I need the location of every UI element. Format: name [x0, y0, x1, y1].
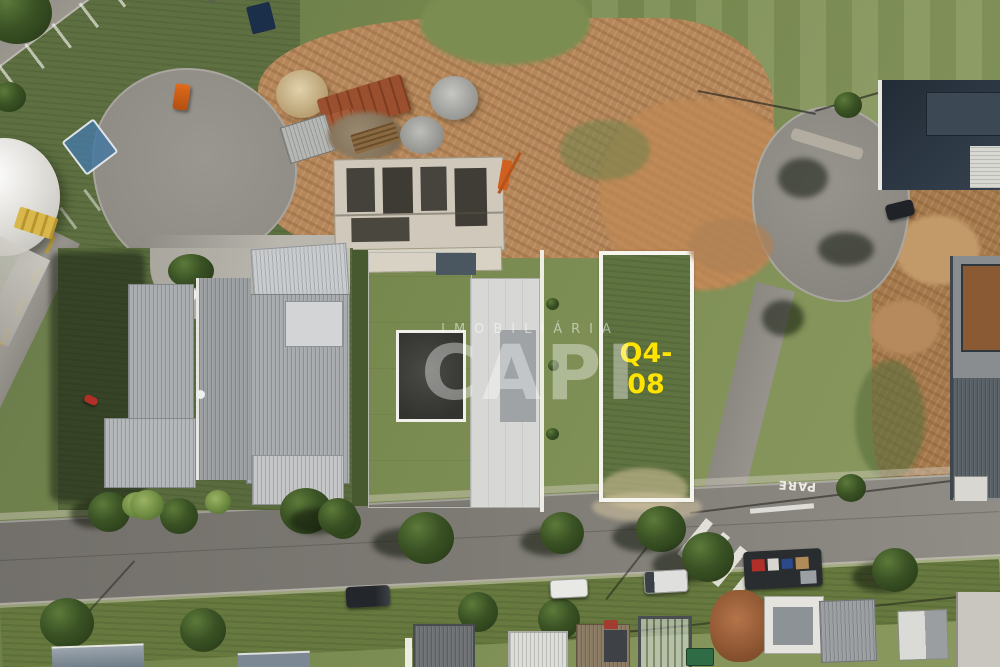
watermark-capi: CAPI	[378, 337, 683, 409]
roof-left	[128, 284, 194, 420]
below-tree-2	[180, 608, 226, 652]
dark-pickup	[345, 585, 390, 608]
foundation-room	[454, 168, 487, 227]
below-tree-1	[40, 598, 94, 648]
street-tree-6	[836, 474, 866, 502]
tree-near-fence	[834, 92, 862, 118]
truck-cab	[800, 570, 817, 584]
street-tree-4	[636, 506, 686, 552]
hedge-bush-1	[546, 298, 559, 310]
roof-dark-section	[436, 253, 476, 275]
street-tree-1	[318, 498, 358, 536]
dirt-pile-bottom-right	[710, 590, 770, 662]
hedge-strip	[352, 250, 368, 506]
white-structure-br	[764, 596, 824, 654]
bottom-dark-panel	[604, 630, 627, 662]
satellite-dish	[196, 390, 205, 399]
palm-bottom-left	[130, 490, 164, 520]
tree-shadow-on-culdesac	[778, 158, 828, 198]
bottom-house-right-1	[819, 599, 877, 663]
bottom-garage-white	[508, 631, 568, 667]
cargo-tan	[795, 557, 809, 570]
cargo-red	[751, 559, 765, 572]
street-tree-7	[872, 548, 918, 592]
driveway-right-edge	[956, 592, 1000, 667]
foundation-room	[351, 217, 409, 242]
aerial-photo-canvas: PARE	[0, 0, 1000, 667]
dirt-eroded-streaks2	[870, 300, 940, 355]
bottom-house-right-2	[897, 609, 949, 661]
bottom-house-2	[238, 651, 311, 667]
pergola-glass	[638, 616, 692, 667]
foundation-slab	[333, 157, 505, 254]
flatbed-truck	[743, 548, 823, 590]
gravel-pile-1	[430, 76, 478, 120]
white-car	[550, 578, 589, 599]
foundation-room	[420, 167, 447, 211]
gravel-pile-2	[400, 116, 444, 154]
construction-building-right	[950, 256, 1000, 500]
grass-scrub-right	[855, 360, 925, 480]
dark-house-deck	[970, 146, 1000, 188]
white-shed-right	[954, 476, 988, 502]
tree-row-2	[160, 498, 198, 534]
bottom-house-1	[52, 643, 145, 667]
construction-open-interior	[961, 264, 1000, 352]
white-suv	[643, 569, 688, 594]
bottom-white-frame	[405, 638, 412, 667]
watermark: IMOBILIÁRIA CAPI	[378, 322, 683, 409]
foundation-room	[346, 168, 375, 212]
cargo-blue	[781, 558, 793, 569]
hedge-bush-3	[546, 428, 559, 440]
red-vent	[604, 620, 618, 629]
dark-house-upper	[926, 92, 1000, 136]
foundation-room	[382, 167, 413, 214]
street-tree-3	[540, 512, 584, 554]
bottom-garage-dark	[413, 624, 475, 667]
tree-shadow-on-stem	[762, 300, 804, 336]
street-tree-2	[398, 512, 454, 564]
roof-upper-right	[250, 243, 349, 302]
street-tree-5	[682, 532, 734, 582]
roof-middle	[196, 278, 251, 480]
tree-shadow-on-culdesac2	[818, 232, 874, 266]
green-dumpster	[686, 648, 714, 666]
roof-skylight	[285, 301, 343, 347]
palm-2	[205, 490, 231, 514]
pare-road-marking: PARE	[780, 478, 817, 494]
dark-house-roof	[878, 80, 1000, 190]
cargo-white	[767, 558, 779, 571]
roof-bottom-left	[104, 418, 196, 488]
grass-patch-mid	[560, 120, 650, 180]
dirt-tongue	[688, 218, 773, 273]
white-structure-interior	[773, 607, 813, 645]
